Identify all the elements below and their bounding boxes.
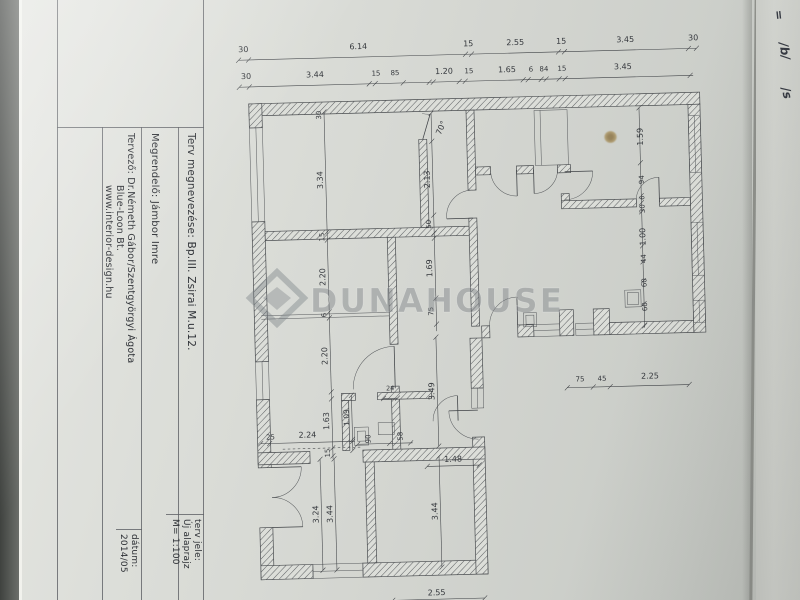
dim-label: 3.44 <box>430 502 439 520</box>
titleblock-top-line <box>57 127 204 128</box>
dim-label: 1.63 <box>322 412 331 430</box>
table-surface <box>0 0 19 600</box>
dim-label: 3.24 <box>311 505 320 523</box>
dim-label: 45 <box>597 375 606 383</box>
dim-label: 60 <box>641 302 649 311</box>
dim-label: 6 <box>529 66 534 74</box>
dim-label: 2.13 <box>423 170 432 188</box>
dim-label: 3.45 <box>616 35 634 44</box>
dim-label: 6 <box>638 196 646 200</box>
designer-line1: Tervező: Dr.Németh Gábor/Szentgyörgyi Ág… <box>125 133 136 578</box>
dim-label: 30 <box>315 111 323 120</box>
dim-label: 90 <box>364 434 372 443</box>
dim-label: 15 <box>463 39 473 48</box>
dim-label: 30 <box>688 33 698 42</box>
dim-label: 60 <box>640 278 648 287</box>
dim-label: 30 <box>639 204 647 213</box>
dim-label: 1.48 <box>444 455 462 464</box>
titleblock-frame-line <box>57 0 58 600</box>
dim-label: 15 <box>324 448 332 457</box>
dim-label: 1.09 <box>342 409 351 426</box>
plan-scale: M= 1:100 <box>169 519 180 599</box>
dim-label: 3.44 <box>325 505 334 523</box>
paper-left-edge <box>19 0 22 600</box>
dim-label: 2.20 <box>320 347 329 365</box>
drawing-frame-line <box>203 0 204 600</box>
dim-label: 25 <box>266 433 275 441</box>
dim-label: 3.34 <box>316 171 325 189</box>
dim-label: 24 <box>386 384 394 392</box>
dim-label: 2.25 <box>641 371 659 380</box>
watermark: DUNAHOUSE <box>240 262 580 334</box>
dim-label: 15 <box>557 65 566 73</box>
dim-label: 15 <box>371 70 380 78</box>
watermark-text: DUNAHOUSE <box>310 281 564 320</box>
plan-type-label: terv jele: <box>191 519 202 599</box>
titleblock-plan-type: terv jele: Új alaprajz M= 1:100 <box>169 519 202 599</box>
dim-label: 3.49 <box>427 382 436 400</box>
dim-label: 85 <box>390 69 399 77</box>
dim-label: 1.65 <box>498 65 516 74</box>
paper-stain <box>604 131 617 143</box>
dim-label: 30 <box>238 45 248 54</box>
dim-label: 30 <box>241 72 251 81</box>
titleblock-client: Megrendelő: Jámbor Imre <box>149 133 160 573</box>
dim-label: 15 <box>556 37 566 46</box>
dim-label: 3.45 <box>614 62 632 71</box>
dim-label: 58 <box>396 432 404 441</box>
dim-label: 3.44 <box>306 70 324 79</box>
dim-label: 70° <box>434 120 448 137</box>
titleblock-designer: Tervező: Dr.Németh Gábor/Szentgyörgyi Ág… <box>103 133 136 578</box>
dim-label: 94 <box>638 175 646 185</box>
photo-of-floorplan: Terv megnevezése: Bp.III. Zsirai M.u.12.… <box>0 0 800 600</box>
titleblock-date: dátum: 2014/05 <box>117 534 139 598</box>
plan-type-value: Új alaprajz <box>180 519 191 599</box>
dim-label: 2.24 <box>298 430 316 439</box>
date-value: 2014/05 <box>117 534 128 598</box>
dim-label: 1.20 <box>435 67 453 76</box>
adjacent-sheet <box>756 0 800 600</box>
dim-label: 50 <box>425 220 433 229</box>
dim-label: 44 <box>640 254 648 264</box>
dim-label: 2.55 <box>506 38 524 47</box>
dim-label: 75 <box>576 375 585 383</box>
designer-line3: www.interior-design.hu <box>103 133 114 578</box>
date-label: dátum: <box>128 534 139 598</box>
dim-label: 84 <box>539 65 549 73</box>
dim-label: 1.00 <box>638 228 647 246</box>
dim-label: 1.59 <box>636 128 645 146</box>
dim-label: 15 <box>464 67 473 75</box>
dim-label: 15 <box>318 233 326 242</box>
dim-label: 2.55 <box>428 588 446 597</box>
designer-line2: Blue-Loon Bt. <box>114 133 125 578</box>
dunahouse-logo-icon <box>250 272 304 324</box>
dim-label: 6.14 <box>349 42 367 51</box>
